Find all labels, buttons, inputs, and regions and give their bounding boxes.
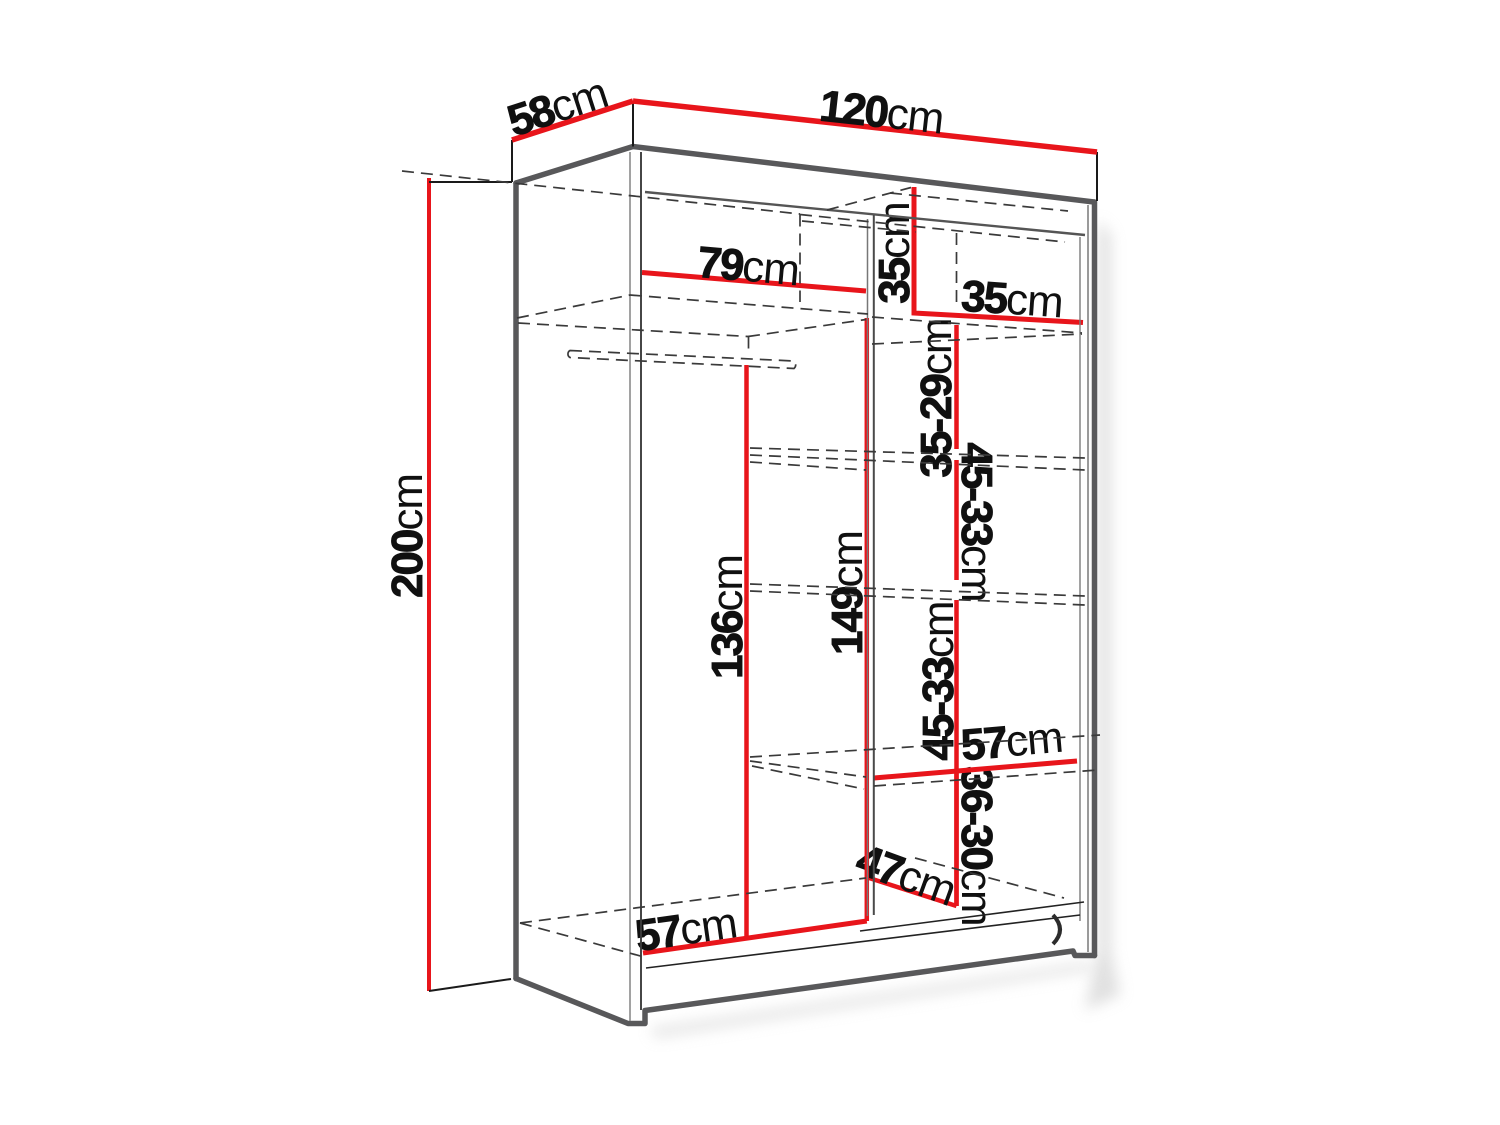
svg-text:35cm: 35cm	[960, 272, 1065, 328]
svg-text:45-33cm: 45-33cm	[952, 442, 1001, 601]
svg-text:58cm: 58cm	[502, 68, 614, 146]
svg-text:120cm: 120cm	[817, 81, 946, 143]
svg-text:136cm: 136cm	[703, 555, 752, 679]
svg-text:36-30cm: 36-30cm	[952, 766, 1001, 925]
svg-text:149cm: 149cm	[823, 531, 872, 655]
svg-text:79cm: 79cm	[696, 238, 801, 296]
svg-text:57cm: 57cm	[959, 713, 1064, 771]
svg-text:200cm: 200cm	[383, 474, 432, 598]
svg-text:45-33cm: 45-33cm	[914, 601, 963, 760]
svg-text:57cm: 57cm	[632, 898, 739, 961]
